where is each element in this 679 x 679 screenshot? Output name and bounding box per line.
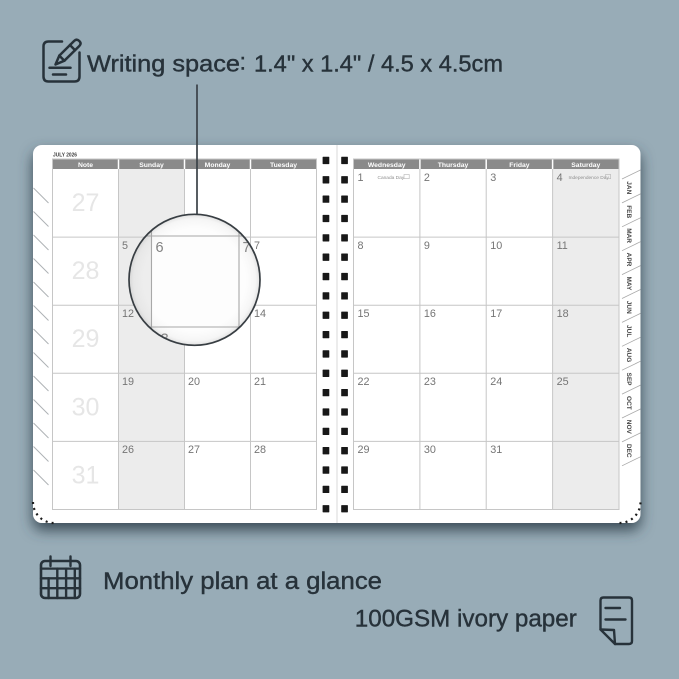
svg-text:28: 28 [254,444,266,456]
svg-text:29: 29 [72,325,100,353]
svg-text:JUN: JUN [625,301,632,314]
svg-text:30: 30 [72,393,100,421]
svg-text:Tuesday: Tuesday [270,162,297,169]
svg-text:27: 27 [72,189,100,217]
svg-text:100GSM ivory paper: 100GSM ivory paper [355,606,577,633]
svg-text:Canada Day: Canada Day [378,175,405,181]
svg-text:Monthly plan at a glance: Monthly plan at a glance [103,568,382,595]
svg-text:31: 31 [490,444,502,456]
svg-text:DEC: DEC [625,444,632,458]
svg-text:Note: Note [78,162,93,169]
svg-text:9: 9 [424,240,430,252]
svg-text:7: 7 [254,240,260,252]
svg-text:OCT: OCT [625,396,632,410]
svg-text:1.4" x 1.4" / 4.5 x 4.5cm: 1.4" x 1.4" / 4.5 x 4.5cm [254,51,503,77]
svg-text:Monday: Monday [205,162,231,169]
svg-text:SEP: SEP [625,372,632,386]
svg-text:Thursday: Thursday [438,162,469,169]
svg-text:15: 15 [358,308,370,320]
svg-text:Wednesday: Wednesday [368,162,406,169]
svg-text:17: 17 [490,308,502,320]
svg-text:2: 2 [424,172,430,184]
svg-text:Saturday: Saturday [571,162,600,169]
svg-text:18: 18 [557,308,569,320]
svg-text:27: 27 [188,444,200,456]
svg-text:24: 24 [490,376,502,388]
svg-text:Independence Day: Independence Day [569,175,610,181]
svg-text:Friday: Friday [509,162,530,169]
svg-text:19: 19 [122,376,134,388]
svg-text:JULY 2026: JULY 2026 [53,152,77,158]
svg-text:31: 31 [72,461,100,489]
svg-text:5: 5 [122,240,128,252]
svg-text:AUG: AUG [625,348,632,362]
svg-text:Writing space: Writing space [87,51,240,77]
svg-text:Sunday: Sunday [139,162,164,169]
svg-text::: : [240,49,247,75]
svg-text:30: 30 [424,444,436,456]
svg-text:16: 16 [424,308,436,320]
svg-text:MAY: MAY [625,276,632,291]
svg-text:25: 25 [557,376,569,388]
svg-text:12: 12 [122,308,134,320]
svg-text:21: 21 [254,376,266,388]
svg-text:APR: APR [625,253,632,267]
svg-text:23: 23 [424,376,436,388]
svg-text:14: 14 [254,308,266,320]
svg-text:MAR: MAR [625,228,632,243]
svg-text:JUL: JUL [625,325,632,337]
svg-text:20: 20 [188,376,200,388]
svg-text:8: 8 [358,240,364,252]
svg-text:22: 22 [358,376,370,388]
svg-text:4: 4 [557,172,563,184]
svg-text:26: 26 [122,444,134,456]
svg-text:28: 28 [72,257,100,285]
svg-text:3: 3 [490,172,496,184]
svg-text:NOV: NOV [625,420,632,435]
svg-text:11: 11 [557,240,568,252]
svg-text:FEB: FEB [625,205,632,218]
svg-text:1: 1 [358,172,364,184]
svg-text:10: 10 [490,240,502,252]
svg-text:JAN: JAN [625,181,632,194]
svg-text:29: 29 [358,444,370,456]
